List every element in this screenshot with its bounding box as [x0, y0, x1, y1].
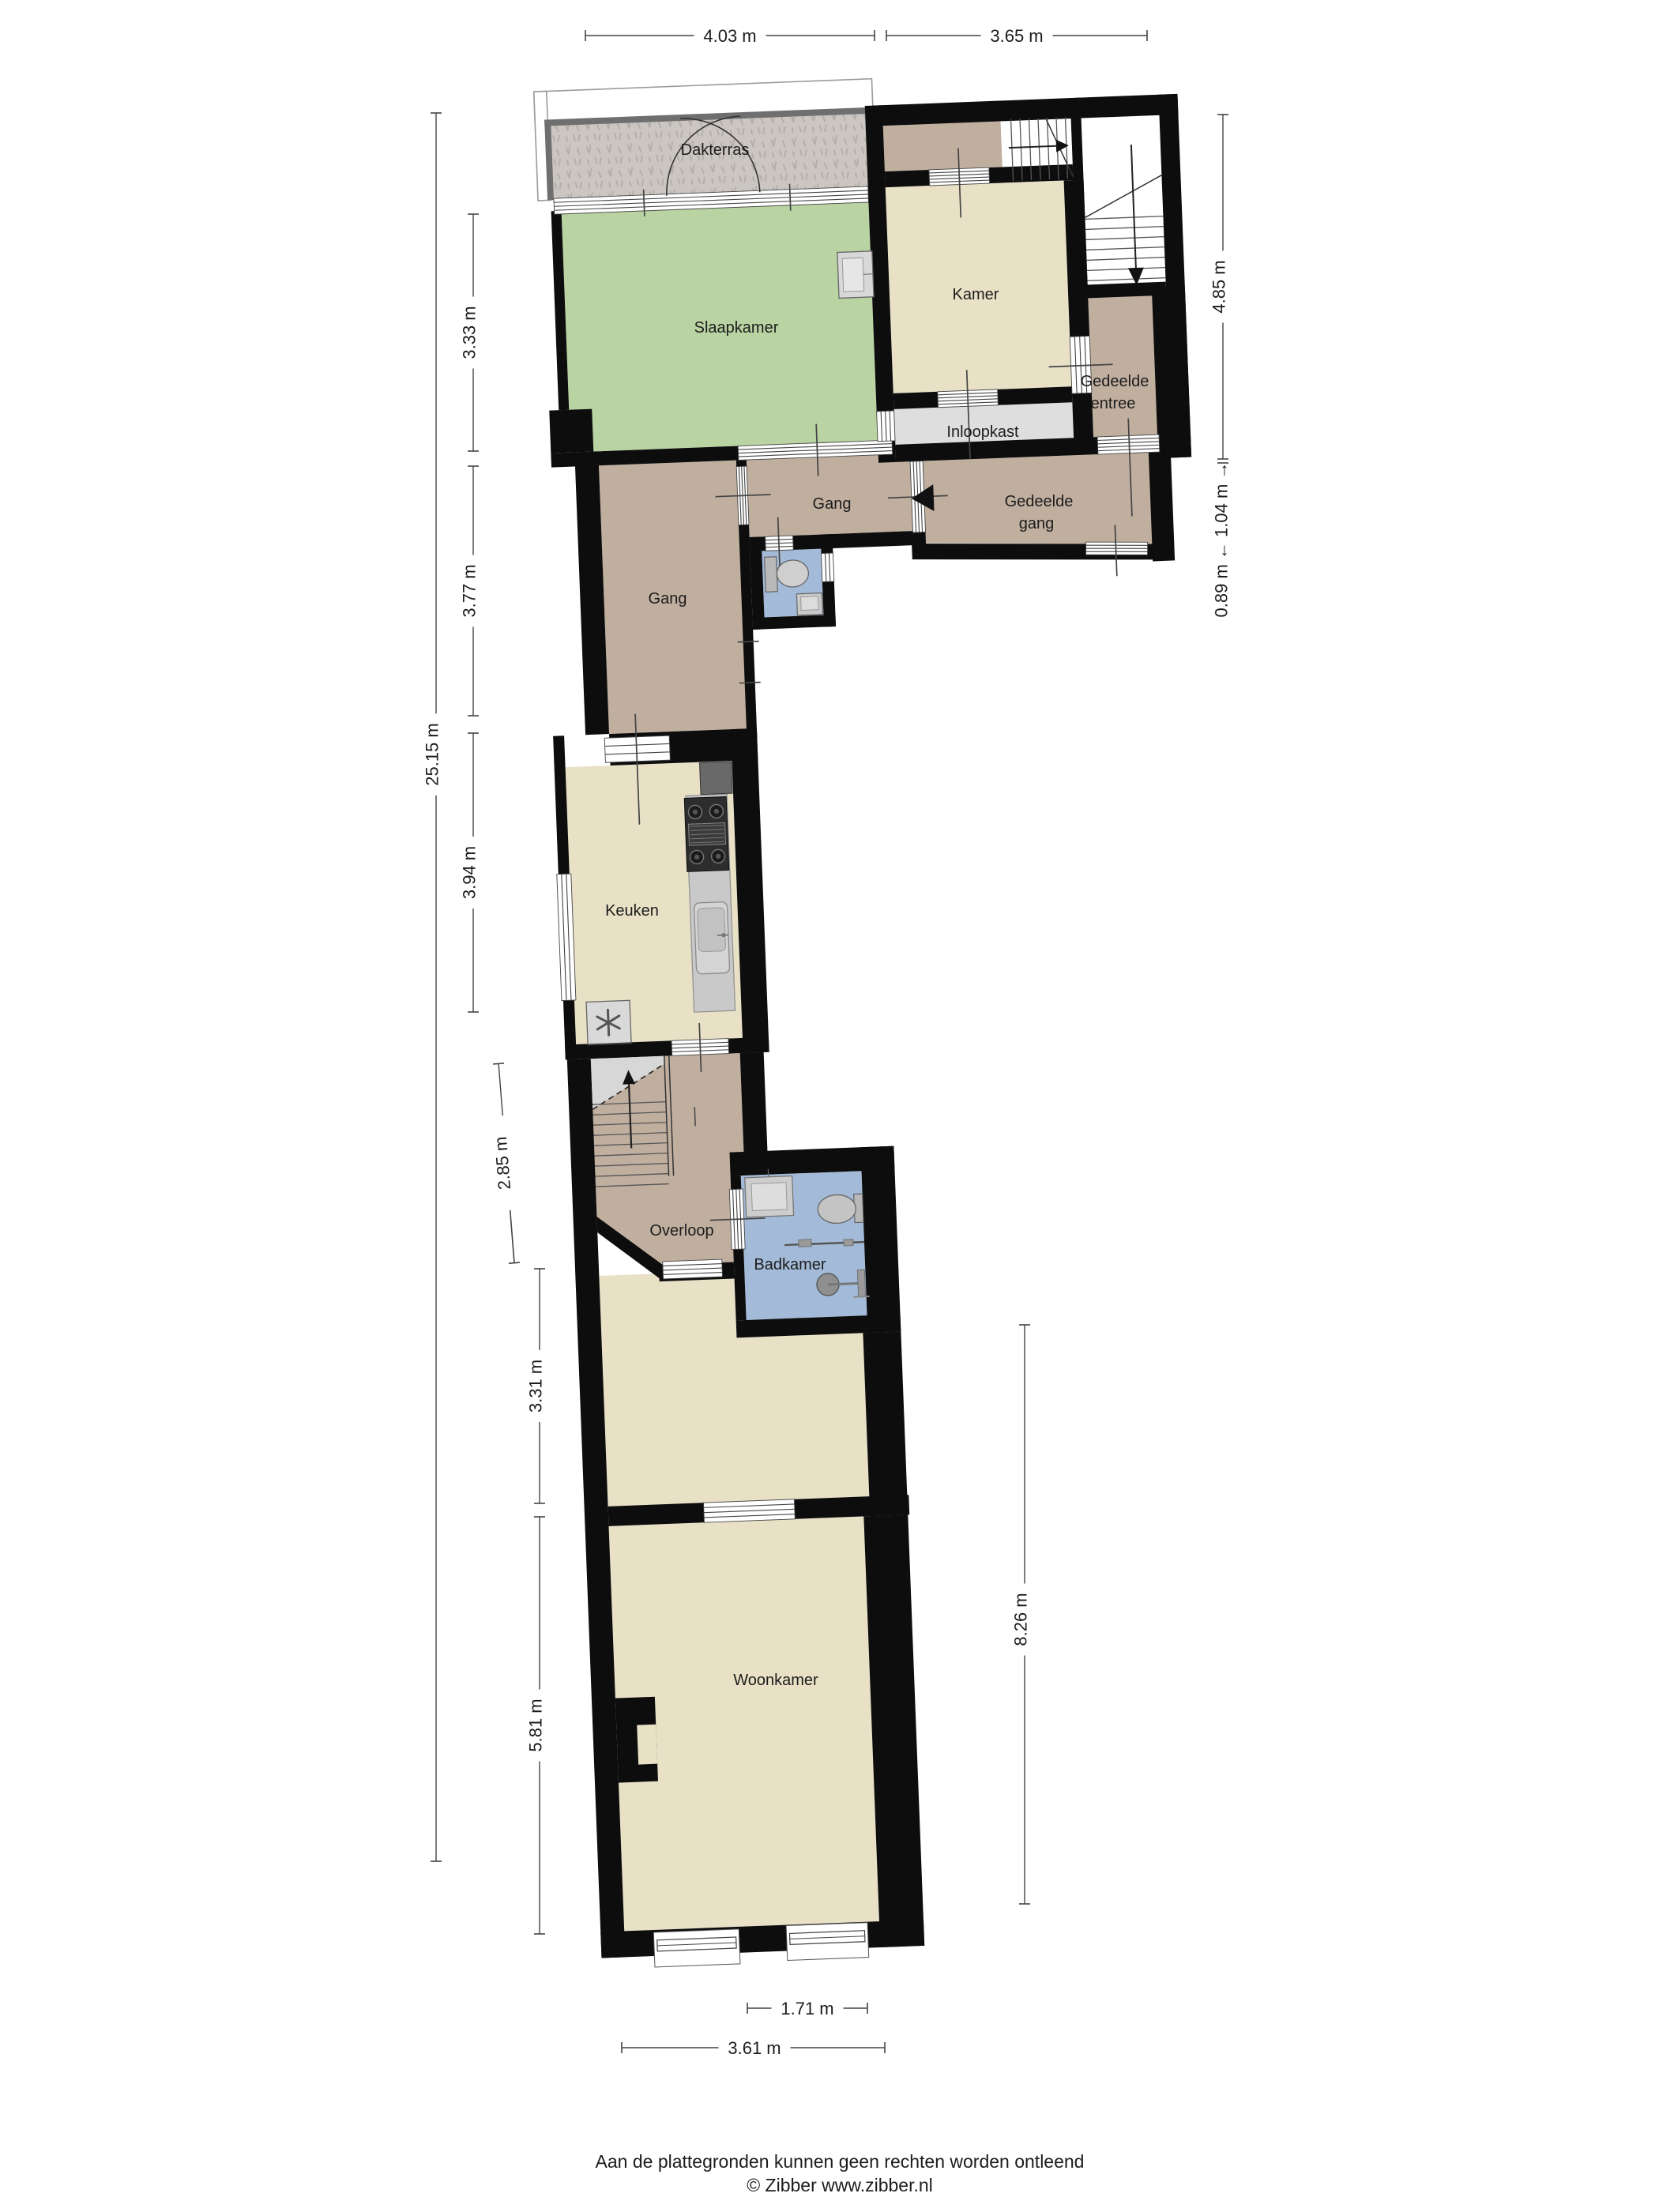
- svg-text:© Zibber www.zibber.nl: © Zibber www.zibber.nl: [747, 2175, 933, 2195]
- svg-text:5.81 m: 5.81 m: [526, 1698, 546, 1751]
- svg-text:Badkamer: Badkamer: [754, 1256, 826, 1273]
- svg-text:0.89 m ← 1.04 m →: 0.89 m ← 1.04 m →: [1212, 462, 1232, 618]
- svg-text:gang: gang: [1019, 515, 1055, 532]
- svg-text:8.26 m: 8.26 m: [1011, 1593, 1031, 1646]
- svg-text:4.85 m: 4.85 m: [1209, 260, 1229, 313]
- svg-text:3.65 m: 3.65 m: [990, 26, 1043, 46]
- svg-text:Woonkamer: Woonkamer: [733, 1672, 818, 1689]
- svg-text:Gedeelde: Gedeelde: [1005, 493, 1074, 510]
- svg-text:Gang: Gang: [649, 590, 687, 608]
- svg-text:entree: entree: [1091, 395, 1136, 412]
- svg-text:3.94 m: 3.94 m: [460, 846, 480, 899]
- svg-text:4.03 m: 4.03 m: [703, 26, 756, 46]
- svg-text:3.33 m: 3.33 m: [460, 306, 480, 359]
- svg-text:2.85 m: 2.85 m: [491, 1136, 514, 1191]
- svg-text:3.77 m: 3.77 m: [460, 564, 480, 617]
- svg-text:1.71 m: 1.71 m: [781, 1999, 833, 2018]
- svg-text:Gang: Gang: [813, 495, 852, 513]
- svg-text:Slaapkamer: Slaapkamer: [694, 319, 779, 337]
- svg-text:Overloop: Overloop: [649, 1222, 713, 1240]
- svg-text:Aan de plattegronden kunnen ge: Aan de plattegronden kunnen geen rechten…: [596, 2151, 1085, 2172]
- svg-text:Kamer: Kamer: [953, 286, 999, 303]
- svg-text:3.61 m: 3.61 m: [728, 2038, 781, 2058]
- svg-text:3.31 m: 3.31 m: [526, 1360, 546, 1413]
- svg-text:25.15 m: 25.15 m: [423, 723, 442, 786]
- svg-text:Keuken: Keuken: [605, 902, 659, 920]
- svg-text:Dakterras: Dakterras: [681, 141, 750, 159]
- svg-text:Gedeelde: Gedeelde: [1081, 373, 1149, 390]
- svg-text:Inloopkast: Inloopkast: [946, 423, 1019, 441]
